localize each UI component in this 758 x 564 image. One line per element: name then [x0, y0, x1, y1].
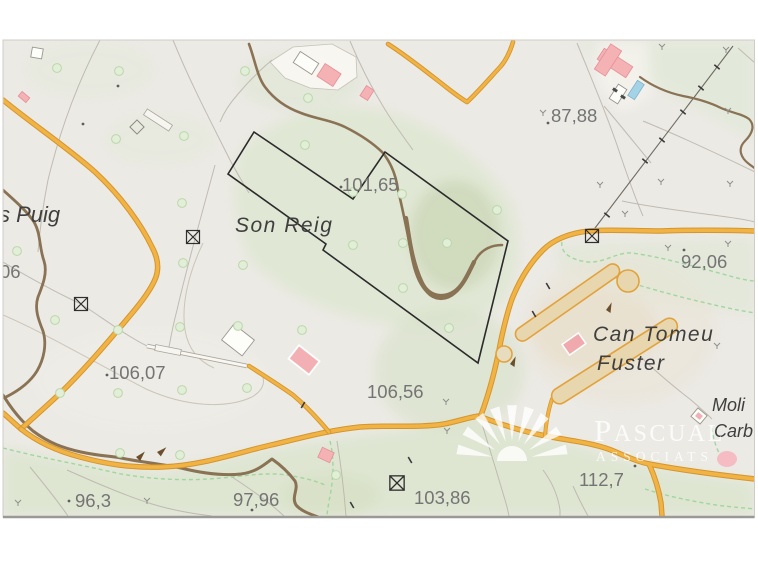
elevation-87-88: 87,88	[551, 105, 597, 126]
label-son-reig: Son Reig	[235, 214, 333, 237]
label-s-puig: s Puig	[0, 202, 61, 227]
watermark-subtitle: ASSOCIATS	[596, 449, 713, 464]
label-can-tomeu: Can Tomeu	[593, 323, 714, 346]
label-moli: Moli	[712, 395, 746, 415]
map-image: s Puig Son Reig Can Tomeu Fuster Moli Ca…	[0, 40, 757, 517]
map-canvas: s Puig Son Reig Can Tomeu Fuster Moli Ca…	[0, 0, 758, 564]
label-fuster: Fuster	[597, 352, 666, 375]
elevation-106-56: 106,56	[367, 381, 424, 402]
elevation-101-65: 101,65	[342, 174, 399, 195]
small-building	[31, 47, 44, 59]
elevation-112-7: 112,7	[579, 469, 624, 490]
elevation-97-96: 97,96	[233, 489, 279, 510]
page-canvas: s Puig Son Reig Can Tomeu Fuster Moli Ca…	[0, 0, 758, 564]
elevation-103-86: 103,86	[414, 487, 471, 508]
elevation-96-3: 96,3	[75, 490, 111, 511]
pink-grove	[717, 451, 737, 467]
elevation-92-06: 92,06	[681, 251, 727, 272]
elevation-106-07: 106,07	[109, 362, 166, 383]
